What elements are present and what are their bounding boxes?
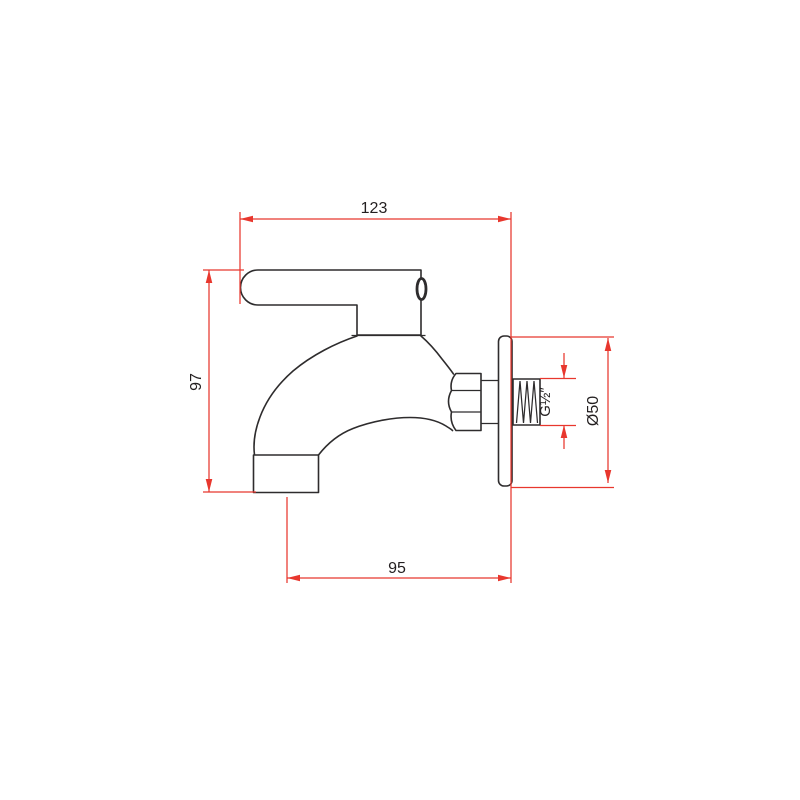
dim-arrow-up	[561, 425, 568, 438]
dim-arrow-right	[498, 575, 511, 582]
spout-outlet	[254, 455, 319, 493]
body-right-curve	[421, 336, 454, 374]
dim-label-width: 123	[361, 200, 388, 217]
faucet-outline-group	[241, 270, 541, 493]
technical-drawing-canvas: 123 97 95 Ø50 G½″	[0, 0, 800, 800]
dim-label-flange-diameter: Ø50	[585, 396, 602, 426]
dim-arrow-right	[498, 216, 511, 223]
wall-flange	[499, 336, 513, 486]
dim-arrow-left	[287, 575, 300, 582]
dim-arrow-left	[240, 216, 253, 223]
dim-arrow-down	[206, 479, 213, 492]
dim-label-thread-size: G½″	[537, 387, 554, 417]
spout-inner-curve	[319, 418, 453, 456]
faucet-drawing-svg: 123 97 95 Ø50 G½″	[0, 0, 800, 800]
handle-lever	[241, 270, 422, 335]
handle-button	[417, 279, 426, 300]
dim-arrow-down	[561, 365, 568, 378]
dimension-group-height-97	[203, 270, 256, 492]
dim-label-height: 97	[188, 373, 205, 391]
dim-arrow-down	[605, 470, 612, 483]
hex-nut	[449, 374, 482, 431]
dim-label-offset: 95	[388, 560, 406, 577]
spout-outer-curve	[254, 336, 357, 455]
dim-arrow-up	[605, 338, 612, 351]
dim-arrow-up	[206, 270, 213, 283]
